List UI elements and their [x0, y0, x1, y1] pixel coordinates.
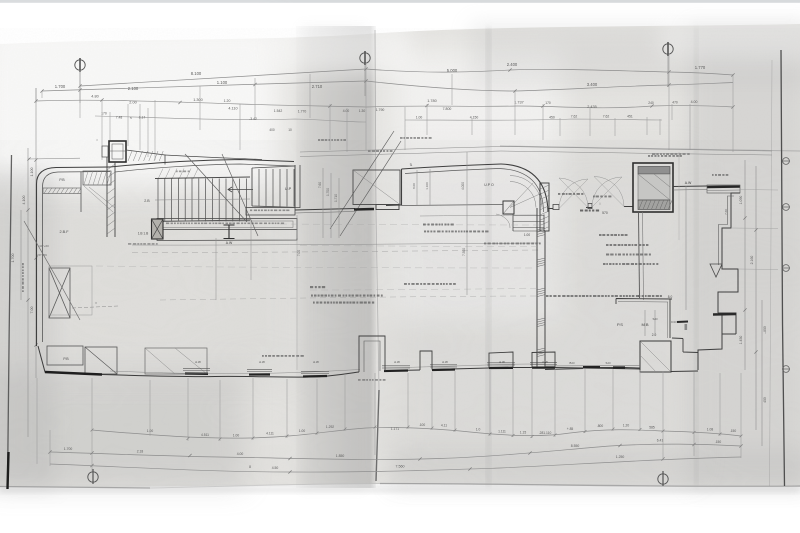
svg-text:7.560: 7.560 [396, 465, 405, 469]
svg-text:B.D: B.D [569, 361, 575, 365]
svg-text:1.700: 1.700 [55, 84, 66, 89]
svg-text:D.D: D.D [671, 320, 677, 324]
svg-text:40°+60: 40°+60 [39, 244, 49, 248]
svg-text:1.00: 1.00 [416, 116, 423, 120]
svg-text:450: 450 [763, 397, 767, 403]
svg-text:1.30: 1.30 [359, 109, 366, 113]
svg-text:3.400: 3.400 [587, 82, 598, 87]
svg-text:P.S: P.S [617, 322, 623, 327]
svg-text:2.435: 2.435 [587, 105, 597, 109]
svg-text:U.P: U.P [285, 187, 292, 191]
svg-text:7.48: 7.48 [116, 116, 123, 120]
svg-text:4.80: 4.80 [91, 95, 98, 99]
svg-text:2.B: 2.B [144, 199, 150, 203]
svg-text:.281.110: .281.110 [539, 431, 552, 435]
svg-text:8.0: 8.0 [668, 295, 673, 299]
svg-text:1.090: 1.090 [739, 196, 743, 205]
svg-text:1.292: 1.292 [326, 425, 334, 429]
svg-text:4.11: 4.11 [441, 424, 447, 428]
svg-text:6.41: 6.41 [657, 439, 664, 443]
svg-text:-.850: -.850 [763, 326, 767, 334]
svg-text:4.110: 4.110 [228, 107, 237, 111]
svg-text:585: 585 [649, 426, 655, 430]
svg-text:1.20: 1.20 [623, 424, 630, 428]
svg-text:1.700: 1.700 [326, 188, 330, 196]
svg-text:7.00: 7.00 [297, 250, 301, 256]
svg-text:A.W: A.W [394, 360, 400, 364]
svg-text:A.W: A.W [442, 360, 448, 364]
svg-text:1.00: 1.00 [233, 434, 240, 438]
svg-text:.150: .150 [730, 429, 737, 433]
svg-text:1.250: 1.250 [616, 455, 625, 459]
svg-text:1.737: 1.737 [514, 101, 524, 105]
svg-text:1.B 1.B: 1.B 1.B [138, 232, 148, 236]
svg-text:P.B: P.B [63, 357, 69, 361]
svg-text:240: 240 [648, 101, 654, 105]
svg-text:A.W: A.W [499, 360, 505, 364]
svg-text:1.450: 1.450 [739, 336, 743, 345]
svg-text:A.W: A.W [685, 181, 692, 185]
svg-text:1.111: 1.111 [498, 430, 506, 434]
svg-text:4.111: 4.111 [266, 432, 274, 436]
svg-text:1.15: 1.15 [520, 431, 527, 435]
svg-text:1.171: 1.171 [391, 427, 399, 431]
svg-text:7.800: 7.800 [443, 107, 452, 111]
svg-text:8: 8 [249, 465, 251, 469]
svg-text:A.W: A.W [195, 360, 201, 364]
svg-text:1.780: 1.780 [427, 99, 437, 103]
svg-text:10: 10 [288, 128, 292, 132]
svg-text:450: 450 [549, 116, 555, 120]
svg-text:2.18: 2.18 [137, 450, 144, 454]
svg-text:170: 170 [545, 101, 551, 105]
svg-text:1.08: 1.08 [707, 428, 714, 432]
svg-text:7.00: 7.00 [30, 307, 34, 314]
svg-text:.100: .100 [419, 423, 426, 427]
svg-text:570: 570 [602, 211, 608, 215]
svg-text:.150: .150 [715, 440, 722, 444]
svg-text:U.P O: U.P O [484, 183, 494, 187]
svg-text:2.00: 2.00 [129, 101, 136, 105]
svg-text:8.00: 8.00 [412, 183, 416, 189]
svg-text:4.150: 4.150 [470, 116, 479, 120]
svg-text:A.W: A.W [313, 360, 319, 364]
svg-text:5.000: 5.000 [447, 68, 458, 73]
svg-text:2.160: 2.160 [750, 256, 754, 265]
svg-text:8.17: 8.17 [139, 116, 146, 120]
svg-text:7.500: 7.500 [462, 248, 466, 256]
svg-text:4.00: 4.00 [691, 100, 698, 104]
svg-text:1.100: 1.100 [217, 80, 228, 85]
svg-text:7.62: 7.62 [571, 115, 578, 119]
svg-text:.800: .800 [597, 424, 604, 428]
svg-text:S.D: S.D [605, 361, 611, 365]
svg-text:1.100: 1.100 [425, 182, 429, 190]
svg-text:1.770: 1.770 [298, 110, 307, 114]
svg-text:2.B.F: 2.B.F [59, 230, 69, 234]
svg-text:4.511: 4.511 [201, 433, 209, 437]
svg-text:400: 400 [269, 128, 275, 132]
svg-text:29°+69: 29°+69 [37, 253, 47, 257]
svg-text:1.542: 1.542 [274, 109, 283, 113]
svg-text:1.00: 1.00 [524, 233, 530, 237]
svg-text:2.0: 2.0 [652, 333, 657, 337]
svg-text:8.100: 8.100 [191, 71, 202, 76]
svg-text:451: 451 [627, 115, 633, 119]
svg-text:7.60: 7.60 [724, 209, 728, 215]
svg-text:1.850: 1.850 [336, 454, 345, 458]
svg-text:7.60: 7.60 [318, 182, 322, 188]
svg-text:4.100: 4.100 [22, 196, 26, 205]
svg-text:○: ○ [96, 138, 98, 142]
svg-text:470: 470 [672, 101, 678, 105]
svg-text:1.00: 1.00 [299, 429, 306, 433]
svg-text:P.B: P.B [59, 178, 65, 182]
svg-text:1.700: 1.700 [64, 447, 73, 451]
svg-text:1.20: 1.20 [224, 99, 231, 103]
svg-text:4.50: 4.50 [272, 466, 279, 470]
svg-text:4.000: 4.000 [461, 182, 465, 190]
svg-text:1.0: 1.0 [476, 428, 481, 432]
svg-text:7.62: 7.62 [603, 115, 610, 119]
svg-text:1.770: 1.770 [695, 65, 706, 70]
svg-text:1.790: 1.790 [376, 108, 385, 112]
svg-text:1.710: 1.710 [334, 194, 338, 202]
svg-text:1.700: 1.700 [11, 254, 15, 263]
svg-text:1.300: 1.300 [193, 98, 203, 102]
svg-text:A.W: A.W [259, 360, 265, 364]
svg-text:-3.42: -3.42 [249, 117, 257, 121]
svg-text:+.85: +.85 [567, 427, 574, 431]
svg-text:1.100: 1.100 [30, 168, 34, 177]
svg-text:2.710: 2.710 [312, 84, 323, 89]
svg-text:4.00: 4.00 [343, 109, 350, 113]
svg-text:8.550: 8.550 [571, 444, 580, 448]
svg-text:2.100: 2.100 [128, 86, 139, 91]
svg-text:4.00: 4.00 [237, 452, 244, 456]
svg-text:S.D: S.D [652, 317, 658, 321]
svg-text:2.400: 2.400 [507, 62, 518, 67]
